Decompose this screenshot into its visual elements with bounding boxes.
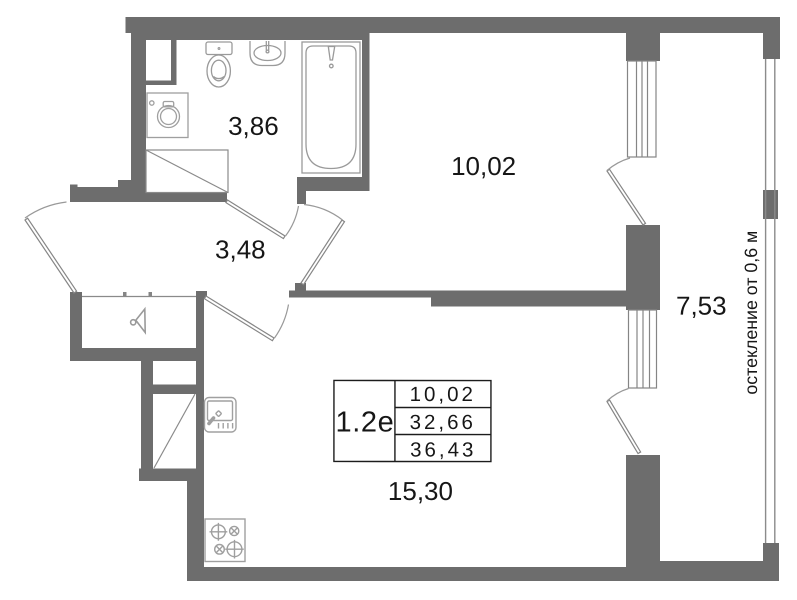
svg-text:1.2е: 1.2е (336, 406, 395, 438)
svg-text:3,48: 3,48 (215, 234, 266, 264)
svg-text:10,02: 10,02 (410, 383, 476, 406)
svg-text:32,66: 32,66 (410, 411, 476, 434)
svg-text:остекление от 0,6 м: остекление от 0,6 м (741, 231, 761, 395)
svg-text:36,43: 36,43 (410, 439, 476, 462)
svg-text:7,53: 7,53 (676, 291, 727, 321)
svg-text:3,86: 3,86 (228, 111, 279, 141)
svg-text:15,30: 15,30 (388, 476, 453, 506)
svg-text:10,02: 10,02 (451, 151, 516, 181)
